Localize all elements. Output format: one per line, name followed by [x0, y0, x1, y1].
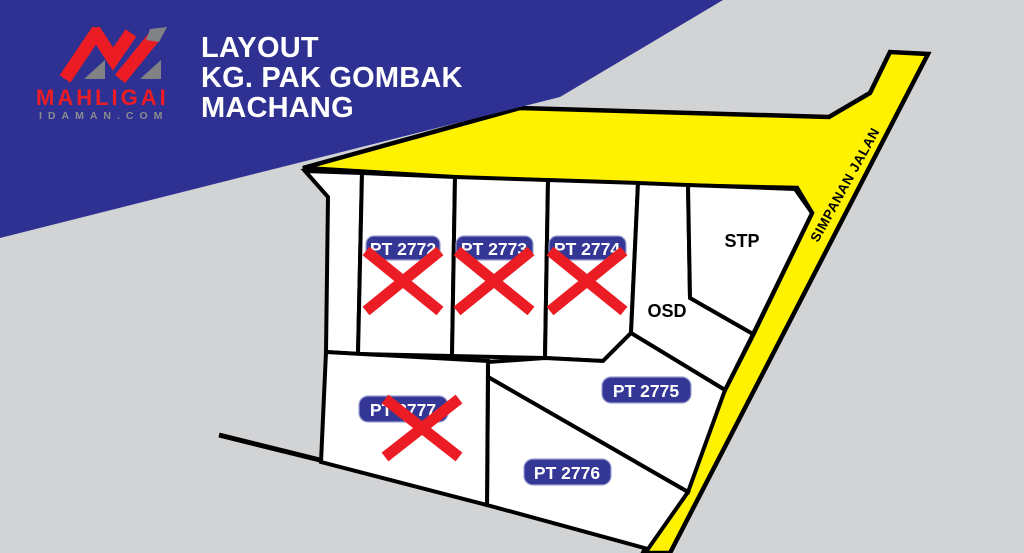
- parcel-pt2773: [452, 177, 548, 358]
- area-label-stp: STP: [724, 231, 759, 251]
- title-line-2: KG. PAK GOMBAK: [201, 63, 463, 93]
- plot-label-pt2776: PT 2776: [524, 459, 611, 485]
- svg-text:PT 2775: PT 2775: [613, 381, 679, 401]
- layout-plan-canvas: SIMPANAN JALAN STP OSD PT 2772 PT 2773 P…: [0, 0, 1024, 553]
- brand-name: MAHLIGAI: [36, 85, 169, 111]
- area-label-osd: OSD: [647, 301, 686, 321]
- logo-m-icon: [65, 27, 167, 79]
- parcel-pt2772: [358, 173, 455, 356]
- brand-logo: [57, 27, 172, 84]
- brand-domain: IDAMAN.COM: [39, 110, 168, 122]
- plot-label-pt2775: PT 2775: [602, 377, 691, 403]
- svg-text:PT 2776: PT 2776: [534, 463, 600, 483]
- title-line-3: MACHANG: [201, 93, 463, 123]
- page-title: LAYOUT KG. PAK GOMBAK MACHANG: [201, 33, 463, 123]
- title-line-1: LAYOUT: [201, 33, 463, 63]
